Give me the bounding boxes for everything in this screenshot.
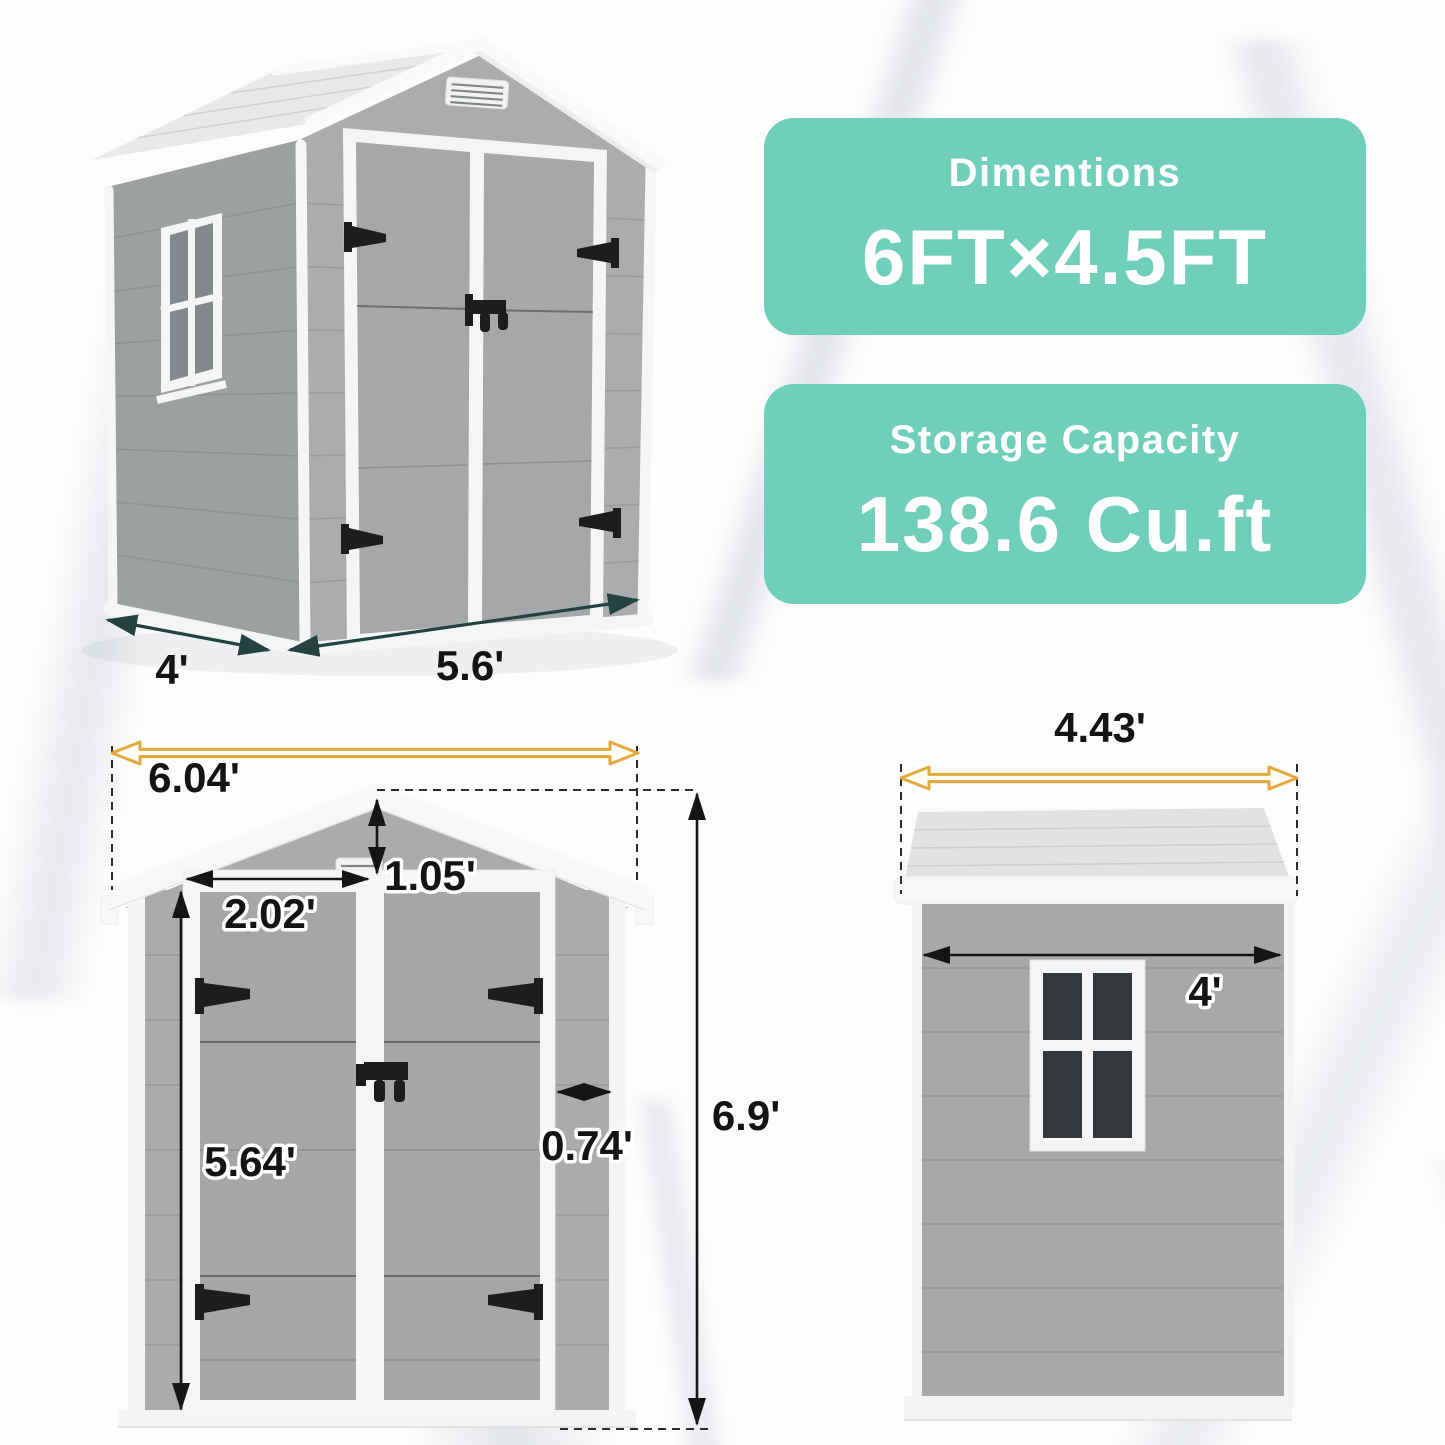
dimensions-card-value: 6FT×4.5FT — [862, 212, 1268, 303]
door-width-label: 2.02' — [224, 890, 316, 937]
side-panel-label: 0.74' — [541, 1122, 633, 1169]
overall-width-label: 6.04' — [148, 754, 240, 801]
side-elevation-figure: 4.43' 4' — [860, 690, 1440, 1430]
left-corner-trim — [128, 890, 145, 1427]
gable-height-label: 1.05' — [384, 852, 476, 899]
capacity-card-value: 138.6 Cu.ft — [857, 479, 1273, 570]
dimensions-card-title: Dimentions — [949, 151, 1182, 196]
overall-height-label: 6.9' — [712, 1092, 780, 1139]
capacity-card: Storage Capacity 138.6 Cu.ft — [764, 384, 1366, 604]
right-corner-trim — [1284, 904, 1294, 1408]
side-base — [904, 1396, 1292, 1420]
shed-dimensions-infographic: 4' 5.6' Dimentions 6FT×4.5FT Storage Cap… — [0, 0, 1445, 1445]
gable-vent — [445, 77, 509, 109]
perspective-shed-figure: 4' 5.6' — [60, 0, 710, 700]
width-label: 5.6' — [436, 642, 504, 689]
roof-depth-arrow — [901, 767, 1297, 789]
side-roof — [894, 808, 1298, 904]
door-height-label: 5.64' — [204, 1138, 296, 1185]
dimensions-card: Dimentions 6FT×4.5FT — [764, 118, 1366, 335]
side-window — [1030, 960, 1145, 1151]
spec-cards: Dimentions 6FT×4.5FT Storage Capacity 13… — [764, 118, 1366, 604]
shed-left-wall — [107, 140, 303, 646]
front-elevation-figure: 6.04' 1.05' 2.02' 5.64' 0.74' 6.9' — [100, 740, 800, 1445]
capacity-card-title: Storage Capacity — [890, 418, 1241, 463]
roof-depth-label: 4.43' — [1054, 704, 1146, 751]
wall-depth-label: 4' — [1188, 968, 1221, 1015]
double-door — [341, 128, 621, 646]
left-corner-trim — [912, 904, 922, 1408]
side-window — [157, 213, 226, 400]
depth-label: 4' — [155, 646, 188, 693]
